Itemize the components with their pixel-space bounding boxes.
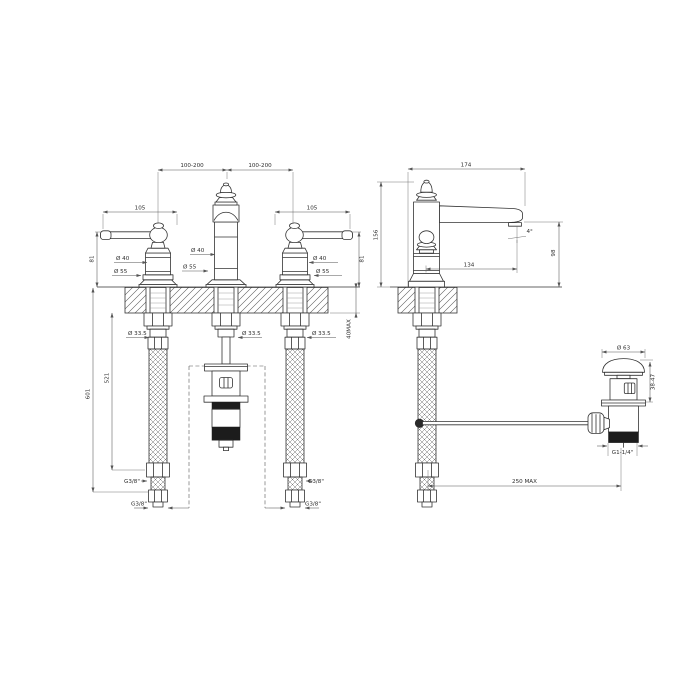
dim-dia55-right: Ø 55 bbox=[316, 268, 330, 275]
dim-spout-reach: 134 bbox=[464, 263, 475, 269]
dim-spacing-right: 100-200 bbox=[248, 163, 272, 169]
dim-dia335-right: Ø 33.5 bbox=[312, 330, 331, 337]
dim-total-length: 601 bbox=[86, 388, 92, 399]
lever-handle-right bbox=[276, 223, 353, 287]
dim-dia55-center: Ø 55 bbox=[183, 264, 197, 271]
dim-height-left: 81 bbox=[90, 255, 96, 263]
lever-handle-left bbox=[101, 223, 178, 287]
dim-thread-right: G3/8" bbox=[308, 479, 324, 485]
front-view: 100-200 100-200 105 105 81 81 Ø 40 Ø 40 … bbox=[86, 163, 366, 508]
dim-hose-length: 521 bbox=[105, 372, 111, 383]
dim-dia40-right: Ø 40 bbox=[313, 255, 327, 262]
technical-drawing-page: 100-200 100-200 105 105 81 81 Ø 40 Ø 40 … bbox=[0, 0, 700, 700]
dim-thread-left: G3/8" bbox=[124, 479, 140, 485]
dim-handle-length-left: 105 bbox=[135, 206, 146, 212]
dim-side-height: 156 bbox=[374, 229, 380, 240]
dim-thread-bottom-left: G3/8" bbox=[131, 502, 147, 508]
side-view: 174 156 98 134 4° 250 MAX Ø 63 bbox=[374, 163, 657, 508]
dim-handle-length-right: 105 bbox=[307, 206, 318, 212]
dim-waste-thread: G1-1/4" bbox=[612, 450, 634, 456]
spout-front bbox=[206, 183, 246, 287]
dim-dia40-center: Ø 40 bbox=[191, 247, 205, 254]
supply-hose-left bbox=[144, 288, 172, 508]
spout-arm bbox=[440, 206, 523, 226]
faucet-technical-drawing: 100-200 100-200 105 105 81 81 Ø 40 Ø 40 … bbox=[0, 0, 700, 700]
dim-spout-height: 98 bbox=[551, 249, 557, 257]
dim-rod-max: 250 MAX bbox=[512, 479, 537, 485]
popup-waste-front bbox=[204, 364, 248, 451]
dim-waste-dia: Ø 63 bbox=[617, 345, 631, 352]
dim-spout-angle: 4° bbox=[527, 229, 534, 235]
popup-waste-side bbox=[588, 359, 646, 448]
dim-thread-bottom-right: G3/8" bbox=[305, 502, 321, 508]
dim-dia335-center: Ø 33.5 bbox=[242, 330, 261, 337]
faucet-side bbox=[409, 180, 523, 287]
dim-side-width: 174 bbox=[461, 163, 472, 169]
dim-dia40-left: Ø 40 bbox=[116, 255, 130, 262]
dim-dia335-left: Ø 33.5 bbox=[128, 330, 147, 337]
dim-height-right: 81 bbox=[360, 255, 366, 263]
supply-hose-side bbox=[413, 288, 441, 508]
popup-rod bbox=[415, 419, 589, 428]
dim-waste-deck-range: 38-47 bbox=[651, 373, 657, 390]
dim-spacing-left: 100-200 bbox=[180, 163, 204, 169]
dim-dia55-left: Ø 55 bbox=[114, 268, 128, 275]
finial-side bbox=[417, 180, 437, 200]
spout-shank-center bbox=[212, 288, 240, 365]
supply-hose-right bbox=[281, 288, 309, 508]
dim-deck-max: 40MAX bbox=[347, 319, 353, 339]
